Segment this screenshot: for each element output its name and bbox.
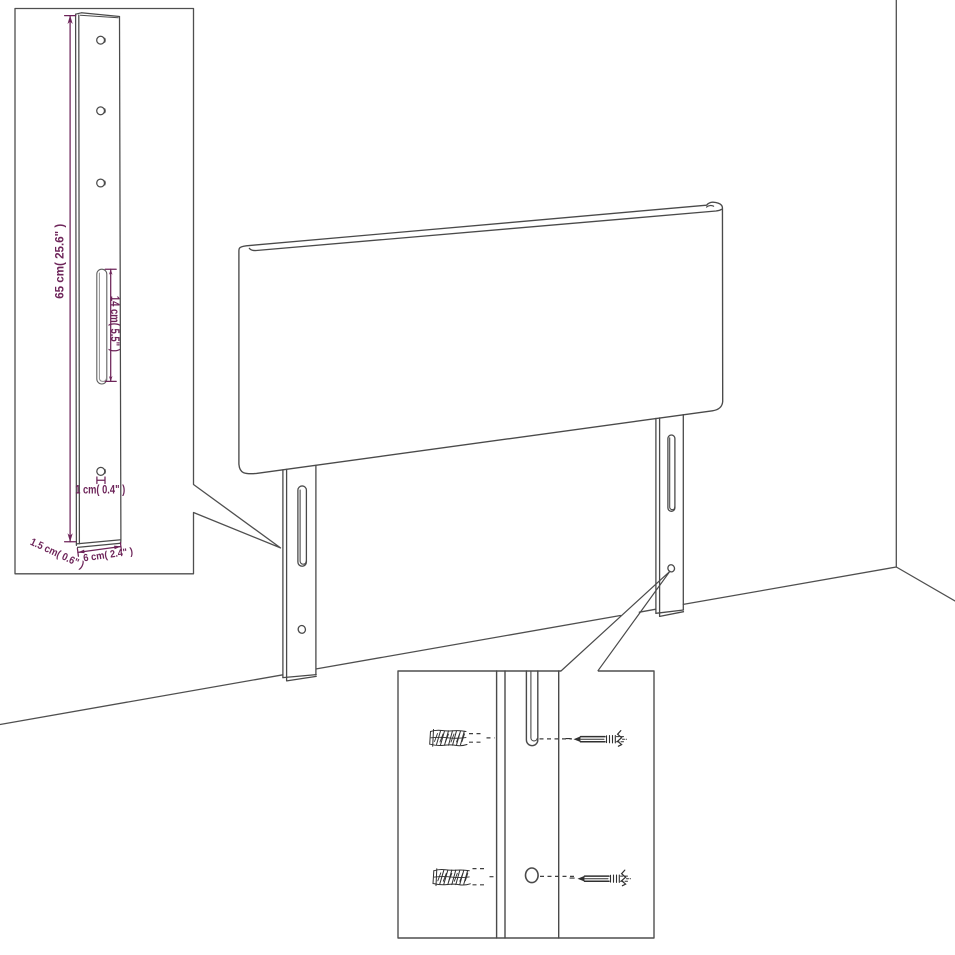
svg-text:1 cm( 0.4" ): 1 cm( 0.4" ) xyxy=(75,482,125,496)
svg-text:65 cm( 25.6" ): 65 cm( 25.6" ) xyxy=(53,224,67,299)
svg-text:1.5 cm( 0.6" ): 1.5 cm( 0.6" ) xyxy=(28,536,86,571)
svg-text:6 cm( 2.4" ): 6 cm( 2.4" ) xyxy=(83,547,134,565)
svg-text:14 cm( 5.5" ): 14 cm( 5.5" ) xyxy=(108,296,122,352)
